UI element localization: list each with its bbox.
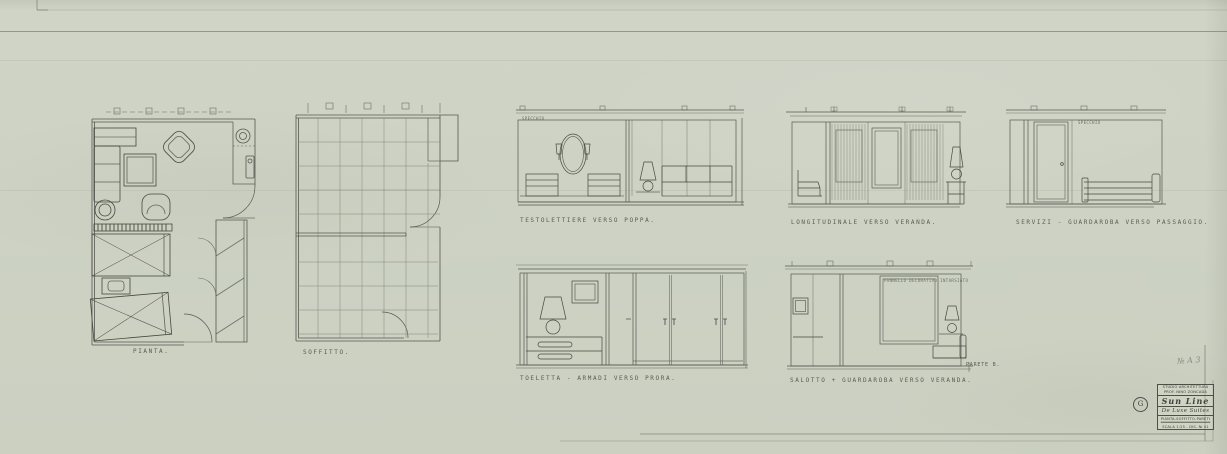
elevation-toeletta-drawing: [514, 261, 750, 375]
pencil-note: № A 3: [1177, 355, 1201, 366]
parete-note: PARETE B.: [966, 362, 1000, 368]
elevation-windows-label: LONGITUDINALE VERSO VERANDA.: [791, 219, 937, 226]
drawing-subject: De Luxe Suites: [1158, 407, 1213, 416]
project-name: Sun Line: [1158, 396, 1213, 407]
panel-note: PANNELLO DECORATIVO INTARSIATO: [884, 278, 968, 283]
title-block: STUDIO ARCHITETTURA PROF. NINO ZONCADA S…: [1157, 384, 1214, 430]
elevation-salotto-drawing: [783, 256, 979, 376]
floor-plan-drawing: [84, 106, 260, 360]
elevation-corridor-label: SERVIZI - GUARDAROBA VERSO PASSAGGIO.: [1016, 219, 1209, 226]
plan-label: PIANTA.: [133, 348, 170, 355]
ceiling-plan-drawing: [288, 101, 466, 359]
elevation-salotto-label: SALOTTO + GUARDAROBA VERSO VERANDA.: [790, 377, 972, 384]
specchio-note: SPECCHIO: [522, 116, 544, 121]
scale-and-number: SCALA 1:25 - DIS. № 41: [1161, 423, 1211, 429]
elevation-toeletta-label: TOELETTA - ARMADI VERSO PRORA.: [520, 375, 676, 382]
ceiling-label: SOFFITTO.: [303, 349, 350, 356]
specchio-note: SPECCHIO: [1078, 120, 1100, 125]
drawing-content: PIANTA-SOFFITTO-PARETI: [1161, 416, 1211, 422]
elevation-beds-drawing: [514, 104, 746, 216]
elevation-beds-label: TESTOLETTIERE VERSO POPPA.: [520, 217, 656, 224]
drawing-sheet: PIANTA. SOFFITTO. TESTOLETTIERE VERSO PO…: [0, 0, 1227, 454]
studio-line2: PROF. NINO ZONCADA: [1161, 390, 1211, 394]
title-block-studio: STUDIO ARCHITETTURA PROF. NINO ZONCADA: [1158, 385, 1213, 396]
revision-mark: G: [1133, 397, 1148, 412]
elevation-windows-drawing: [784, 104, 968, 216]
